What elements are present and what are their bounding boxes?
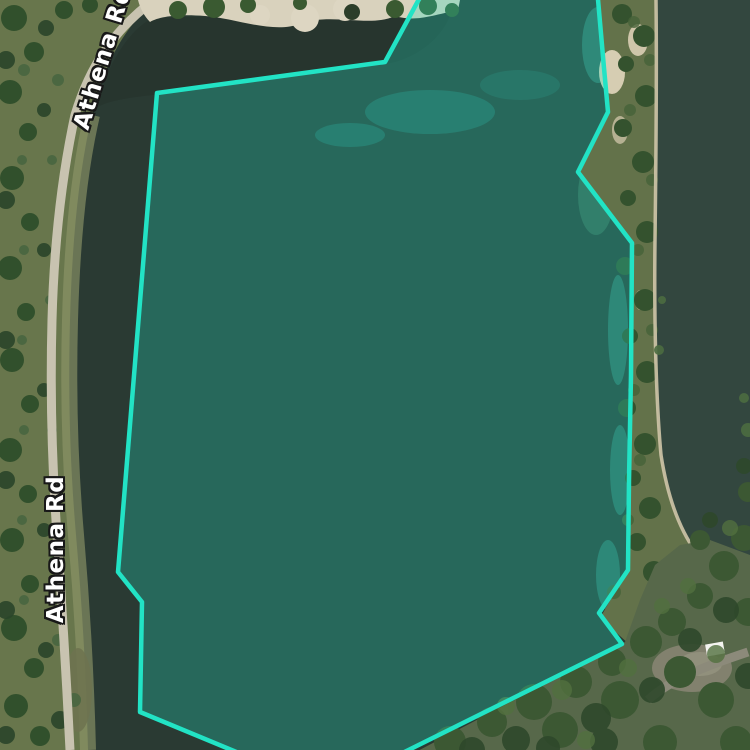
map-view[interactable]: Athena Rd Athena Rd (0, 0, 750, 750)
satellite-basemap (0, 0, 750, 750)
selection-polygon[interactable] (118, 0, 632, 750)
road-label-athena-rd-left: Athena Rd (43, 475, 69, 623)
